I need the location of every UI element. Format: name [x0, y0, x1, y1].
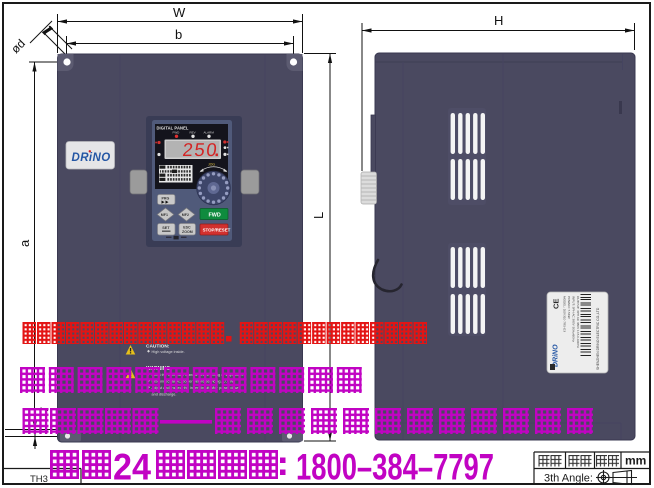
svg-text:MF1: MF1	[161, 213, 168, 217]
svg-text:b: b	[175, 27, 182, 42]
svg-text:W: W	[173, 5, 186, 20]
svg-text:a: a	[17, 239, 32, 247]
svg-text:CE: CE	[552, 299, 561, 309]
svg-text:STOP/RESET: STOP/RESET	[203, 228, 231, 233]
svg-text:DRiNO: DRiNO	[72, 152, 111, 164]
svg-text:MF2: MF2	[182, 213, 189, 217]
svg-text:INPUT: 3PH AC 380V 50Hz/60Hz: INPUT: 3PH AC 380V 50Hz/60Hz	[572, 296, 576, 342]
svg-text:ZOOM: ZOOM	[182, 230, 193, 234]
svg-text:CAUTION:: CAUTION:	[146, 344, 170, 350]
svg-text:ALARM: ALARM	[204, 131, 215, 135]
svg-text:PRG: PRG	[162, 197, 170, 201]
svg-text:JOG: JOG	[208, 163, 215, 167]
svg-text:3th Angle:: 3th Angle:	[544, 473, 593, 485]
svg-text:TH3: TH3	[30, 474, 48, 485]
svg-text:L: L	[311, 212, 326, 219]
svg-text:High voltage inside.: High voltage inside.	[152, 350, 185, 354]
svg-text:DRiNO: DRiNO	[553, 344, 560, 367]
svg-text:SHENZHEN DRINO ELECTRIC CO.,LT: SHENZHEN DRINO ELECTRIC CO.,LTD	[596, 307, 600, 370]
svg-text:mm: mm	[625, 454, 646, 468]
svg-text:POWER: 7.5KW: POWER: 7.5KW	[567, 296, 571, 319]
svg-text:FWD: FWD	[173, 131, 181, 135]
svg-text:H: H	[494, 13, 503, 28]
svg-text:OUTPUT: 3PH AC 380V 17A 0-600: OUTPUT: 3PH AC 380V 17A 0-600Hz	[576, 296, 580, 348]
svg-text:SET: SET	[162, 226, 170, 230]
svg-text:FWD: FWD	[209, 212, 221, 218]
svg-text:250: 250	[182, 139, 220, 160]
svg-text:24: 24	[113, 447, 151, 488]
svg-text:1800–384–7797: 1800–384–7797	[296, 447, 494, 488]
svg-text:MODEL: DSV310-7R5-G3: MODEL: DSV310-7R5-G3	[563, 296, 567, 332]
svg-text:REV: REV	[190, 131, 196, 135]
